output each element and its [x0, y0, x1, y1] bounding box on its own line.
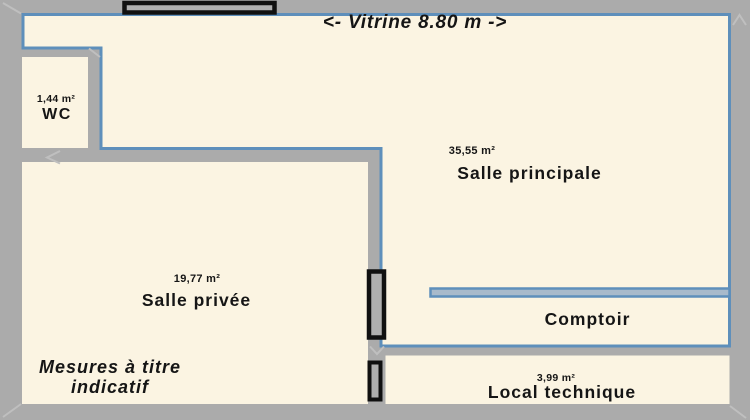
disclaimer-line-1: Mesures à titre — [39, 358, 181, 378]
salle-principale-area-label: 35,55 m² — [449, 145, 495, 157]
wc-name-label: WC — [42, 106, 72, 124]
door-marker-salle-privee — [369, 272, 384, 338]
window-marker — [125, 3, 275, 13]
vitrine-annotation: <- Vitrine 8.80 m -> — [323, 13, 507, 34]
disclaimer-note: Mesures à titre indicatif — [39, 358, 181, 397]
counter-bar — [431, 289, 730, 297]
salle-privee-name-label: Salle privée — [142, 291, 251, 310]
door-marker-local-technique — [370, 363, 381, 400]
wc-area-label: 1,44 m² — [37, 94, 75, 106]
comptoir-name-label: Comptoir — [545, 310, 631, 329]
salle-privee-area-label: 19,77 m² — [174, 273, 220, 285]
floor-plan: <- Vitrine 8.80 m -> 1,44 m² WC 35,55 m²… — [0, 0, 750, 420]
salle-principale-name-label: Salle principale — [457, 164, 601, 183]
disclaimer-line-2: indicatif — [39, 378, 181, 398]
local-technique-name-label: Local technique — [488, 383, 636, 402]
